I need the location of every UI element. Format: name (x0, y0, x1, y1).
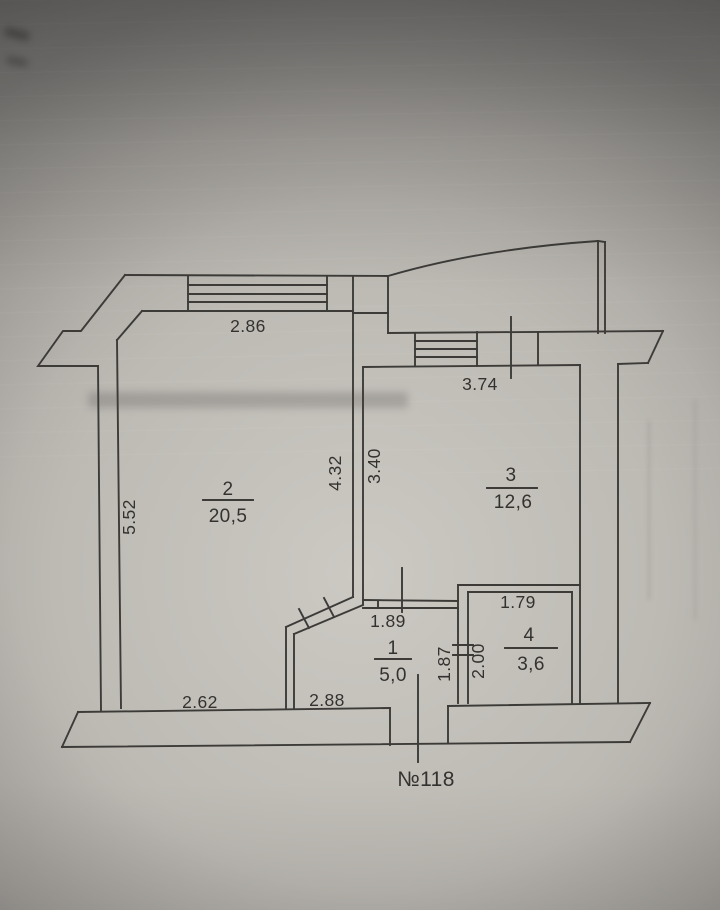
room3-area: 12,6 (494, 492, 533, 513)
wall-room2-room3 (353, 311, 363, 604)
dim-room1-bottom: 2.88 (309, 690, 345, 710)
dim-room3-left-wall: 3.40 (364, 448, 384, 484)
outer-wall-top-right (363, 331, 663, 367)
room1-area: 5,0 (379, 665, 407, 686)
dim-room2-left-wall: 5.52 (119, 499, 139, 535)
room3-number: 3 (506, 465, 517, 486)
room1-number: 1 (388, 638, 399, 659)
room4-area: 3,6 (517, 654, 545, 675)
floor-plan-photo: 2.86 3.74 5.52 4.32 3.40 1.89 1.79 1.87 … (0, 0, 720, 910)
dim-room3-top-window: 3.74 (462, 374, 498, 394)
room2-area: 20,5 (209, 506, 248, 527)
outer-wall-right (580, 364, 618, 703)
dim-room2-bottom: 2.62 (182, 692, 218, 712)
dim-room2-right-wall: 4.32 (325, 455, 345, 491)
floor-plan-drawing: 2.86 3.74 5.52 4.32 3.40 1.89 1.79 1.87 … (0, 0, 720, 910)
dimension-labels: 2.86 3.74 5.52 4.32 3.40 1.89 1.79 1.87 … (119, 316, 536, 712)
outer-wall-bottom (62, 703, 650, 747)
balcony-outline (388, 241, 663, 333)
apartment-number-label: №118 (397, 768, 455, 791)
room-label-bars (203, 488, 557, 659)
dim-room1-top: 1.89 (370, 611, 406, 631)
dim-room2-top-window: 2.86 (230, 316, 266, 336)
outer-wall-top-left (38, 275, 388, 710)
window-room3 (415, 317, 538, 378)
room-labels: 2 20,5 3 12,6 1 5,0 4 3,6 (209, 465, 545, 686)
dim-room4-left: 2.00 (468, 643, 488, 679)
window-room2 (188, 276, 388, 313)
room2-number: 2 (223, 479, 234, 500)
room4-number: 4 (524, 625, 535, 646)
dim-room1-right: 1.87 (434, 646, 454, 682)
dim-room4-top: 1.79 (500, 592, 536, 612)
wall-room1-room3 (363, 568, 458, 612)
